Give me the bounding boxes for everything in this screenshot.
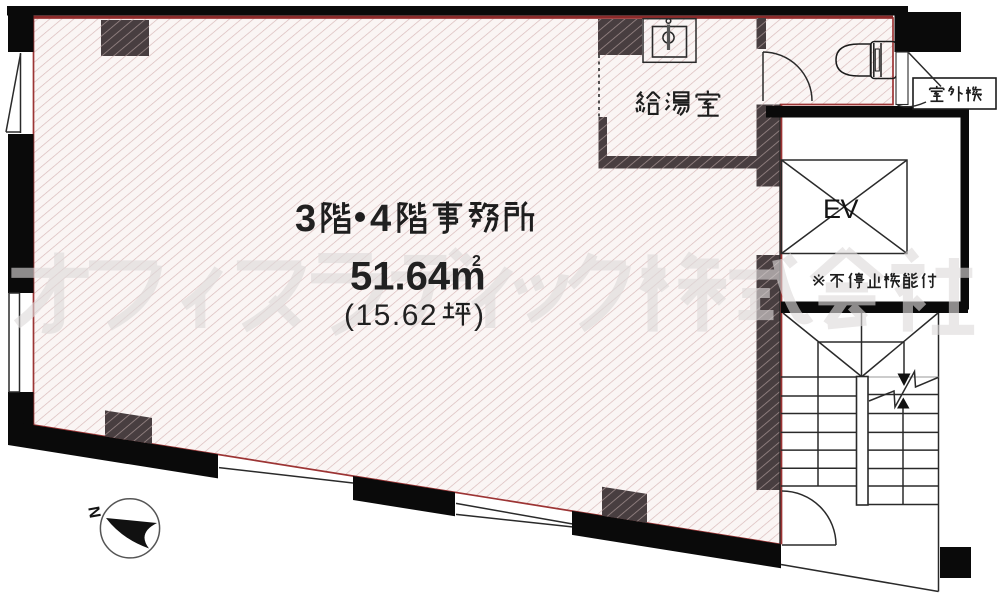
- svg-text:(15.62: (15.62: [344, 299, 438, 332]
- svg-text:): ): [474, 299, 484, 332]
- svg-text:2: 2: [472, 253, 481, 270]
- svg-text:4: 4: [370, 198, 391, 240]
- svg-text:51.64m: 51.64m: [350, 255, 486, 299]
- svg-text:N: N: [86, 505, 105, 519]
- svg-text:3: 3: [295, 198, 316, 240]
- svg-text:EV: EV: [823, 194, 859, 224]
